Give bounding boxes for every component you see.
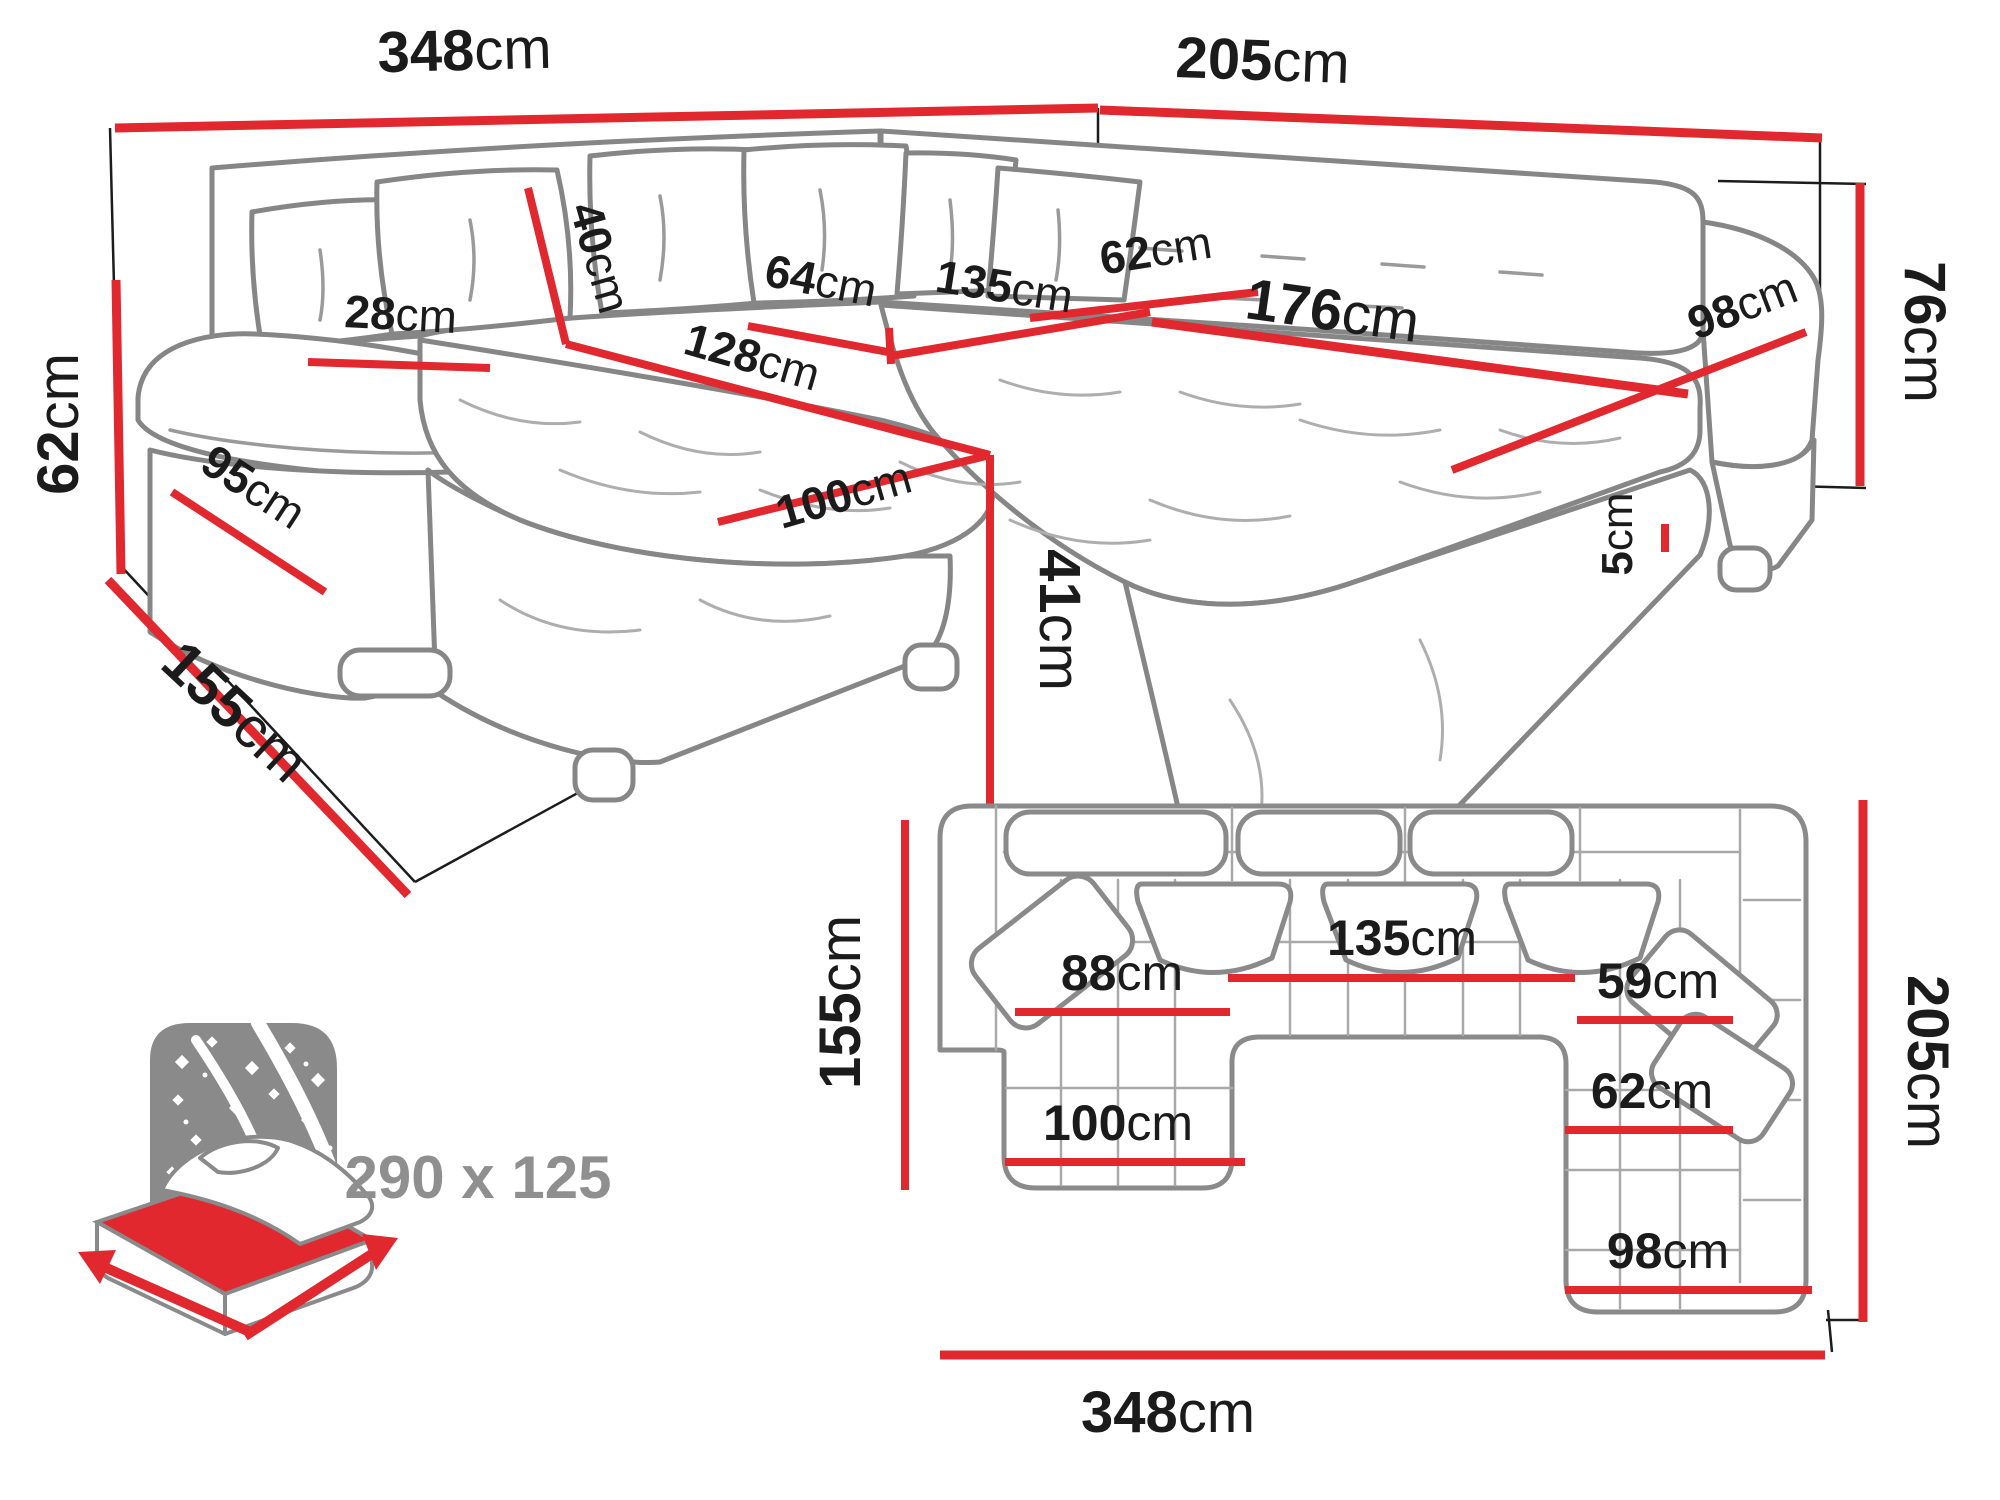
dim-armrest-width-label: 28cm bbox=[343, 285, 458, 343]
sofa-dimension-diagram: 348cm 205cm 76cm 62cm 155cm 95cm 28cm 40… bbox=[0, 0, 2000, 1500]
dim-back-height-label: 76cm bbox=[1892, 261, 1957, 403]
foot-chaise-right bbox=[905, 645, 957, 689]
plan-view: 155cm 88cm 135cm 59cm 62cm 100cm 98cm 20… bbox=[808, 800, 1960, 1445]
plan-dim-left-depth-label: 155cm bbox=[808, 915, 873, 1089]
plan-dim-right-seat-label: 62cm bbox=[1591, 1063, 1713, 1119]
dimline-62-left bbox=[116, 280, 121, 574]
sleeper-icon: 290 x 125 bbox=[78, 1023, 611, 1336]
dim-back-width-label: 348cm bbox=[377, 16, 553, 86]
sleeper-size-label: 290 x 125 bbox=[345, 1144, 612, 1211]
plan-corner-tick-v bbox=[1828, 1310, 1832, 1352]
foot-right-arm bbox=[1720, 548, 1770, 590]
plan-dim-chaise-width-label: 100cm bbox=[1043, 1095, 1193, 1151]
projection-tick-76-top bbox=[1718, 181, 1866, 184]
right-armrest bbox=[1703, 222, 1822, 467]
plan-dim-right-depth-label: 205cm bbox=[1895, 975, 1960, 1149]
dimline-348 bbox=[115, 108, 1098, 128]
foot-left-arm bbox=[340, 650, 450, 696]
dimtick-64-135 bbox=[889, 328, 891, 364]
foot-chaise-left bbox=[575, 750, 633, 800]
dimline-205 bbox=[1100, 110, 1822, 138]
plan-dim-right-col-label: 98cm bbox=[1607, 1223, 1729, 1279]
dim-leg-height-label: 5cm bbox=[1593, 492, 1642, 575]
diagram-canvas: 348cm 205cm 76cm 62cm 155cm 95cm 28cm 40… bbox=[0, 0, 2000, 1500]
dim-seat-height-label: 41cm bbox=[1027, 549, 1092, 691]
plan-dim-corner-seat-label: 59cm bbox=[1597, 953, 1719, 1009]
dim-side-width-label: 205cm bbox=[1175, 25, 1351, 96]
plan-dim-total-width-label: 348cm bbox=[1081, 1380, 1255, 1445]
dim-arm-height-label: 62cm bbox=[26, 353, 91, 495]
plan-dim-mid-seat-label: 135cm bbox=[1327, 910, 1477, 966]
plan-dim-chaise-seat-label: 88cm bbox=[1061, 945, 1183, 1001]
